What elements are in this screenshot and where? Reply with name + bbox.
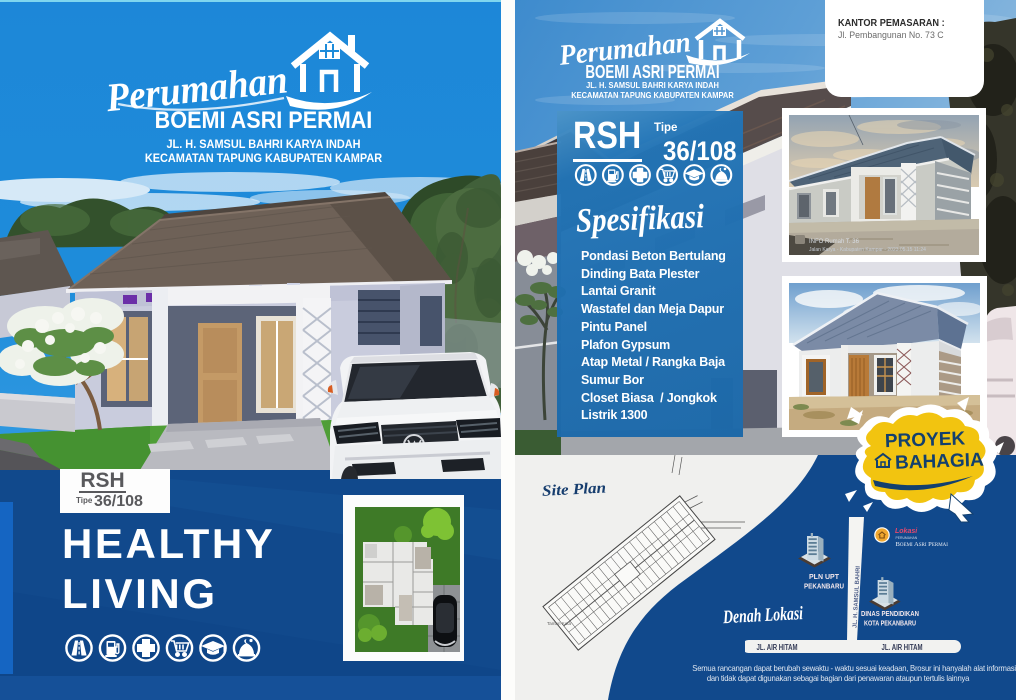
- svg-text:PEKANBARU: PEKANBARU: [804, 582, 844, 591]
- svg-text:KOTA PEKANBARU: KOTA PEKANBARU: [864, 619, 916, 628]
- svg-text:JL. AIR HITAM: JL. AIR HITAM: [757, 643, 798, 652]
- svg-text:BOEMI ASRI PERMAI: BOEMI ASRI PERMAI: [896, 541, 949, 548]
- svg-text:Taman Kota: Taman Kota: [547, 621, 572, 626]
- svg-text:JL. AIR HITAM: JL. AIR HITAM: [882, 643, 923, 652]
- svg-text:DINAS PENDIDIKAN: DINAS PENDIDIKAN: [861, 609, 919, 618]
- svg-text:PLN UPT: PLN UPT: [809, 572, 839, 581]
- svg-text:Lokasi: Lokasi: [895, 528, 918, 535]
- svg-text:PROYEK: PROYEK: [885, 428, 966, 452]
- svg-text:Spesifikasi: Spesifikasi: [575, 198, 705, 239]
- svg-text:Site Plan: Site Plan: [542, 479, 607, 499]
- svg-text:Jalan Karya - Kabupaten Kampar: Jalan Karya - Kabupaten Kampar - 2023.05…: [809, 247, 926, 253]
- svg-text:INFO Rumah T. 36: INFO Rumah T. 36: [809, 239, 860, 245]
- svg-text:PERUMAHAN: PERUMAHAN: [896, 536, 918, 540]
- svg-text:BAHAGIA: BAHAGIA: [895, 450, 985, 474]
